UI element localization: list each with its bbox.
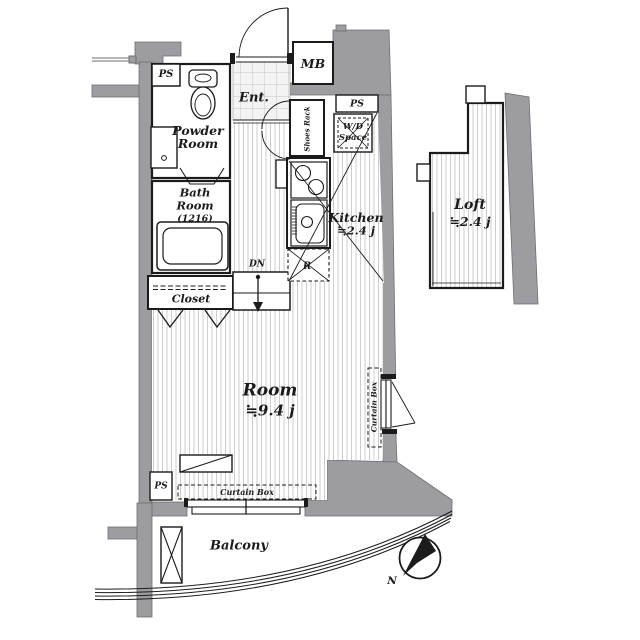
label-ps-right: PS — [350, 99, 364, 109]
wall-bottom-right — [305, 460, 452, 516]
loft-left-tab — [417, 164, 430, 181]
door-swing-arc — [239, 8, 288, 57]
label-powder-room-2: Room — [178, 138, 218, 151]
label-meter-box: MB — [301, 58, 325, 71]
sink-drain — [302, 217, 313, 228]
bottom-window — [184, 498, 308, 514]
label-loft-2: ≒2.4 j — [449, 216, 490, 229]
label-bath-room-1: Bath — [180, 187, 211, 199]
label-closet: Closet — [172, 294, 211, 305]
burner-2 — [309, 180, 324, 195]
toilet-lid — [195, 74, 211, 82]
label-bath-room-3: (1216) — [177, 214, 212, 224]
wall-bottom-left-block — [150, 502, 187, 516]
label-kitchen-2: ≒2.4 j — [337, 225, 375, 237]
label-wd-space-1: W/D — [343, 123, 363, 132]
label-loft-1: Loft — [454, 198, 486, 212]
wall-right-lower — [382, 430, 397, 462]
label-ps-bottom: PS — [154, 483, 167, 492]
hallway-floor — [233, 122, 288, 272]
left-thin-arm — [92, 56, 136, 63]
label-ps-top: PS — [159, 70, 174, 80]
label-shoes-rack: Shoes Rack — [304, 106, 311, 151]
label-refrigerator: R — [303, 262, 311, 272]
label-room-2: ≒9.4 j — [245, 404, 294, 419]
basin-drain — [162, 156, 167, 161]
wall-balcony-left — [137, 503, 152, 617]
bathtub-inner — [163, 228, 222, 264]
toilet-seat — [195, 94, 211, 116]
right-window — [381, 374, 415, 434]
kitchen-appliances — [291, 162, 327, 246]
label-compass-north: N — [387, 576, 397, 587]
label-room-1: Room — [243, 383, 298, 400]
floor-plan: PS Powder Room Ent. MB Shoes Rack PS W/D… — [0, 0, 640, 640]
label-bath-room-2: Room — [176, 200, 213, 212]
wall-notch — [336, 25, 346, 31]
label-curtain-box-bottom: Curtain Box — [220, 488, 274, 496]
loft-top-stub — [466, 86, 485, 103]
wall-left-arm — [92, 85, 139, 97]
floor-plan-drawing — [0, 0, 640, 640]
label-entrance: Ent. — [239, 92, 269, 105]
compass — [400, 534, 441, 579]
wall-loft-right — [505, 93, 538, 304]
wall-balcony-arm — [108, 527, 137, 539]
label-dn: DN — [249, 261, 265, 270]
label-balcony: Balcony — [210, 540, 268, 553]
label-wd-space-2: Space — [339, 134, 367, 143]
loft-floor — [430, 103, 503, 288]
label-curtain-box-right: Curtain Box — [370, 382, 378, 432]
wall-top-left-block — [135, 42, 181, 64]
